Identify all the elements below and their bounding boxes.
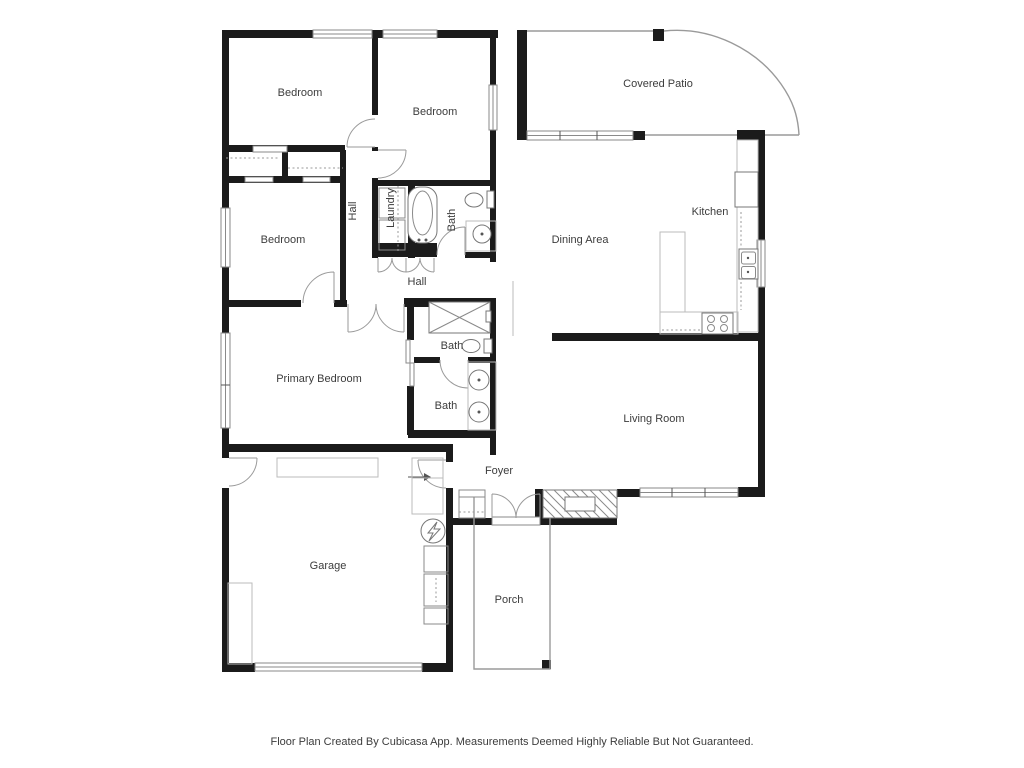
stove-4-burner	[702, 313, 733, 334]
room-label-foyer: Foyer	[485, 465, 513, 477]
entry-closet	[459, 490, 485, 518]
entry-door-threshold	[492, 517, 540, 525]
room-label-living-room: Living Room	[623, 413, 684, 425]
room-label-laundry: Laundry	[385, 188, 397, 228]
room-label-bath-upper: Bath	[446, 209, 458, 232]
room-label-bath-middle: Bath	[441, 340, 464, 352]
room-label-bath-lower: Bath	[435, 400, 458, 412]
toilet	[462, 339, 492, 353]
bathtub	[408, 187, 437, 243]
room-label-bedroom-top-middle: Bedroom	[413, 106, 458, 118]
room-label-covered-patio: Covered Patio	[623, 78, 693, 90]
room-label-garage: Garage	[310, 560, 347, 572]
garage-appliances	[424, 546, 448, 624]
kitchen-counter	[660, 140, 758, 334]
room-label-hall-lower: Hall	[408, 276, 427, 288]
room-label-porch: Porch	[495, 594, 524, 606]
room-label-hall-upper: Hall	[347, 202, 359, 221]
refrigerator	[735, 172, 758, 207]
floor-plan-page: Bedroom Bedroom Covered Patio Bedroom Ha…	[0, 0, 1024, 768]
room-label-primary-bedroom: Primary Bedroom	[276, 373, 362, 385]
shower	[429, 302, 491, 333]
garage-shelf	[412, 458, 443, 514]
room-label-kitchen: Kitchen	[692, 206, 729, 218]
room-label-bedroom-left: Bedroom	[261, 234, 306, 246]
room-label-dining-area: Dining Area	[552, 234, 610, 246]
garage-storage	[228, 583, 252, 664]
toilet	[465, 191, 494, 208]
footer-disclaimer: Floor Plan Created By Cubicasa App. Meas…	[270, 736, 753, 748]
floor-plan-drawing: Bedroom Bedroom Covered Patio Bedroom Ha…	[0, 0, 1024, 768]
kitchen-double-sink	[739, 249, 758, 279]
workbench	[277, 458, 378, 477]
water-heater	[421, 519, 445, 543]
entry-direction-arrow	[408, 473, 431, 481]
room-label-bedroom-top-left: Bedroom	[278, 87, 323, 99]
